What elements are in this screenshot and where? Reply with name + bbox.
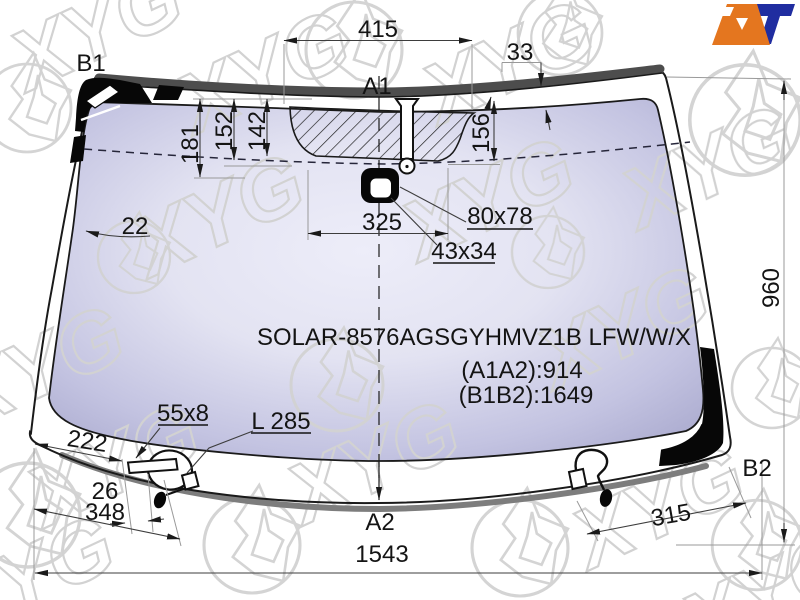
svg-text:1543: 1543 — [355, 541, 408, 568]
svg-text:415: 415 — [358, 16, 398, 43]
svg-text:B2: B2 — [742, 455, 771, 482]
svg-text:325: 325 — [362, 209, 402, 236]
svg-text:43x34: 43x34 — [431, 238, 496, 265]
svg-text:152: 152 — [211, 111, 238, 151]
svg-text:55x8: 55x8 — [157, 400, 209, 427]
svg-text:181: 181 — [177, 124, 204, 164]
svg-text:80x78: 80x78 — [467, 203, 532, 230]
svg-text:L 285: L 285 — [251, 408, 310, 435]
svg-text:(B1B2):1649: (B1B2):1649 — [459, 382, 594, 409]
svg-text:SOLAR-8576AGSGYHMVZ1B LFW/W/X: SOLAR-8576AGSGYHMVZ1B LFW/W/X — [257, 324, 691, 351]
svg-text:142: 142 — [244, 111, 271, 151]
svg-text:348: 348 — [85, 499, 125, 526]
svg-text:A1: A1 — [362, 73, 391, 100]
svg-text:(A1A2):914: (A1A2):914 — [461, 357, 582, 384]
svg-text:A2: A2 — [365, 509, 394, 536]
svg-text:33: 33 — [507, 39, 534, 66]
svg-text:B1: B1 — [76, 50, 105, 77]
svg-text:960: 960 — [758, 268, 785, 308]
svg-text:22: 22 — [122, 213, 149, 240]
svg-text:156: 156 — [468, 113, 495, 153]
